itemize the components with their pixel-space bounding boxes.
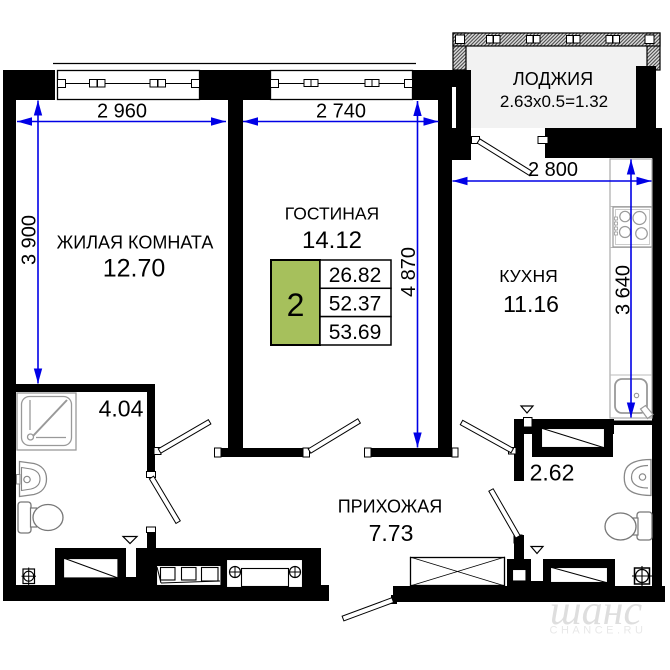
svg-text:CHANCE.RU: CHANCE.RU <box>550 625 647 637</box>
svg-text:7.73: 7.73 <box>369 520 414 546</box>
svg-text:4 870: 4 870 <box>398 247 420 297</box>
svg-text:14.12: 14.12 <box>302 227 362 254</box>
svg-text:ЖИЛАЯ КОМНАТА: ЖИЛАЯ КОМНАТА <box>57 233 214 253</box>
svg-text:ЛОДЖИЯ: ЛОДЖИЯ <box>513 69 593 89</box>
svg-text:11.16: 11.16 <box>503 291 559 317</box>
svg-text:12.70: 12.70 <box>103 255 166 283</box>
svg-text:2 740: 2 740 <box>316 101 366 123</box>
svg-text:26.82: 26.82 <box>329 264 382 287</box>
svg-text:3 900: 3 900 <box>19 215 41 265</box>
svg-text:53.69: 53.69 <box>329 321 382 344</box>
svg-text:3 640: 3 640 <box>613 265 635 315</box>
svg-text:2: 2 <box>287 287 305 323</box>
svg-text:ПРИХОЖАЯ: ПРИХОЖАЯ <box>338 497 443 517</box>
svg-text:ГОСТИНАЯ: ГОСТИНАЯ <box>285 204 379 224</box>
svg-text:2 960: 2 960 <box>97 101 147 123</box>
svg-text:4.04: 4.04 <box>99 396 144 422</box>
svg-text:52.37: 52.37 <box>329 293 382 316</box>
svg-text:КУХНЯ: КУХНЯ <box>499 266 557 286</box>
svg-text:2 800: 2 800 <box>528 159 578 181</box>
svg-text:2.62: 2.62 <box>530 460 575 486</box>
svg-text:2.63х0.5=1.32: 2.63х0.5=1.32 <box>500 92 608 111</box>
